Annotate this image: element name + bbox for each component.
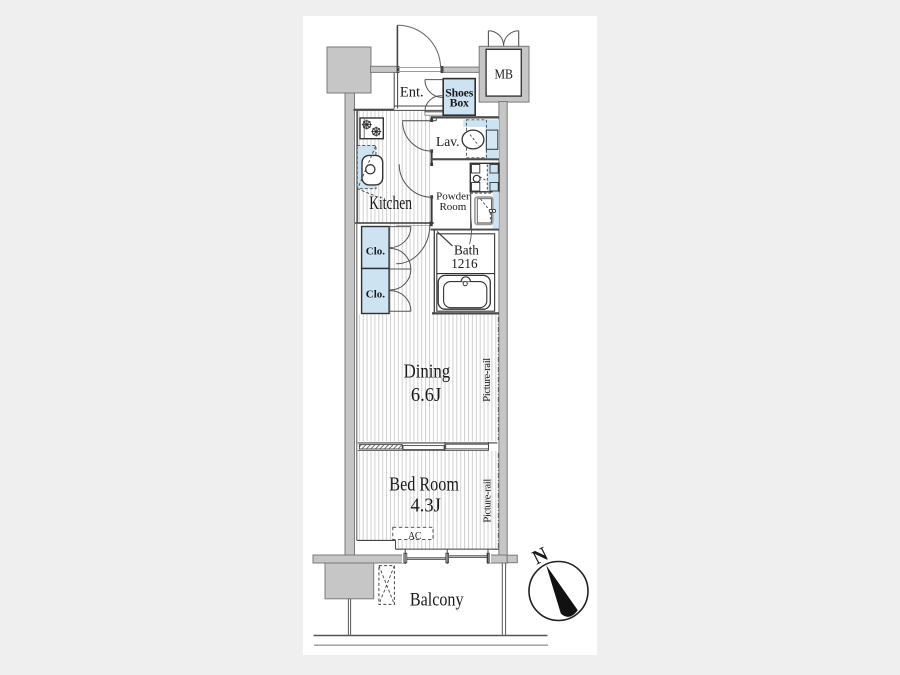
svg-text:Ent.: Ent.	[400, 85, 424, 101]
svg-text:Balcony: Balcony	[410, 589, 464, 609]
svg-text:Kitchen: Kitchen	[369, 193, 412, 214]
svg-text:4.3J: 4.3J	[411, 495, 441, 517]
svg-text:Dining: Dining	[404, 360, 451, 381]
svg-text:Bed Room: Bed Room	[389, 473, 459, 495]
svg-text:1216: 1216	[451, 256, 478, 271]
svg-text:MB: MB	[494, 66, 513, 82]
svg-text:Picture-rail: Picture-rail	[481, 358, 493, 402]
svg-text:Box: Box	[450, 96, 469, 110]
svg-text:Picture-rail: Picture-rail	[482, 479, 494, 523]
svg-text:Lav.: Lav.	[436, 134, 460, 149]
svg-text:Clo.: Clo.	[366, 289, 386, 301]
svg-text:6.6J: 6.6J	[411, 384, 441, 406]
svg-text:AC: AC	[408, 531, 422, 542]
svg-text:Clo.: Clo.	[366, 246, 386, 258]
svg-text:Room: Room	[439, 201, 466, 213]
